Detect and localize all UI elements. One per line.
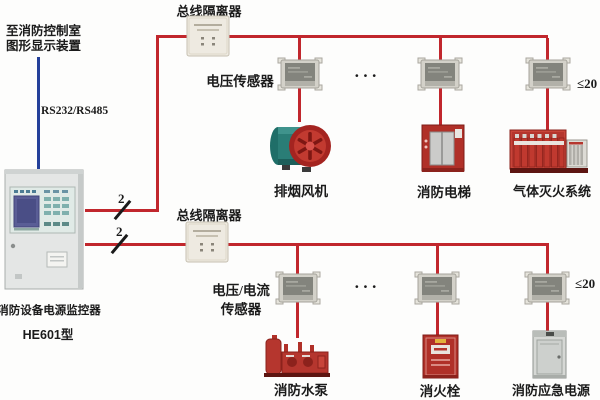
device-label-elevator: 消防电梯 bbox=[417, 181, 471, 201]
fire-pump-skid-icon bbox=[262, 334, 332, 384]
bus1-sensor-label: 电压传感器 bbox=[206, 70, 274, 90]
fire-hydrant-cabinet-icon bbox=[422, 334, 459, 386]
control-room-line2: 图形显示装置 bbox=[6, 39, 81, 54]
bus1-sensor-3-icon bbox=[524, 57, 572, 96]
device-label-gas: 气体灭火系统 bbox=[513, 181, 591, 200]
gas-extinguishing-rack-icon bbox=[509, 127, 589, 180]
serial-wire bbox=[37, 57, 40, 169]
device-label-fan: 排烟风机 bbox=[274, 180, 328, 200]
bus1-ellipsis: ··· bbox=[354, 66, 380, 86]
bus1-sensor-2-icon bbox=[416, 57, 464, 96]
bus1-sensor-1-icon bbox=[276, 57, 324, 96]
serial-link-label: RS232/RS485 bbox=[41, 105, 108, 117]
bus2-sensor-1-icon bbox=[274, 271, 322, 310]
bus2-wire-count: 2 bbox=[116, 224, 123, 240]
bus2-ellipsis: ··· bbox=[354, 277, 380, 297]
power-monitor-cabinet-icon bbox=[4, 168, 86, 297]
bus2-sensor-label-line1: 电压/电流 bbox=[212, 281, 270, 300]
bus2-sensor-label-line2: 传感器 bbox=[212, 300, 270, 319]
bus2-wire-main bbox=[85, 243, 549, 246]
control-room-caption: 至消防控制室 图形显示装置 bbox=[6, 24, 81, 54]
fire-power-monitoring-diagram: 至消防控制室 图形显示装置 RS232/RS485 2 2 总线隔离器 电压传感… bbox=[0, 0, 600, 400]
monitor-name-label: 消防设备电源监控器 bbox=[0, 302, 101, 318]
bus2-sensor-2-icon bbox=[413, 271, 461, 310]
bus1-isolator-icon bbox=[186, 15, 230, 62]
bus2-sensor-3-icon bbox=[523, 271, 571, 310]
bus2-limit-label: ≤20 bbox=[575, 276, 595, 292]
fire-elevator-icon bbox=[421, 124, 465, 179]
bus1-wire-riser bbox=[156, 35, 159, 212]
bus1-limit-label: ≤20 bbox=[577, 76, 597, 92]
bus2-sensor-label: 电压/电流 传感器 bbox=[212, 281, 270, 319]
emergency-power-cabinet-icon bbox=[532, 330, 567, 385]
smoke-exhaust-fan-icon bbox=[267, 120, 333, 179]
control-room-line1: 至消防控制室 bbox=[6, 24, 81, 39]
bus2-isolator-icon bbox=[185, 221, 229, 268]
bus1-wire-count: 2 bbox=[118, 191, 125, 207]
monitor-model-label: HE601型 bbox=[23, 324, 74, 343]
